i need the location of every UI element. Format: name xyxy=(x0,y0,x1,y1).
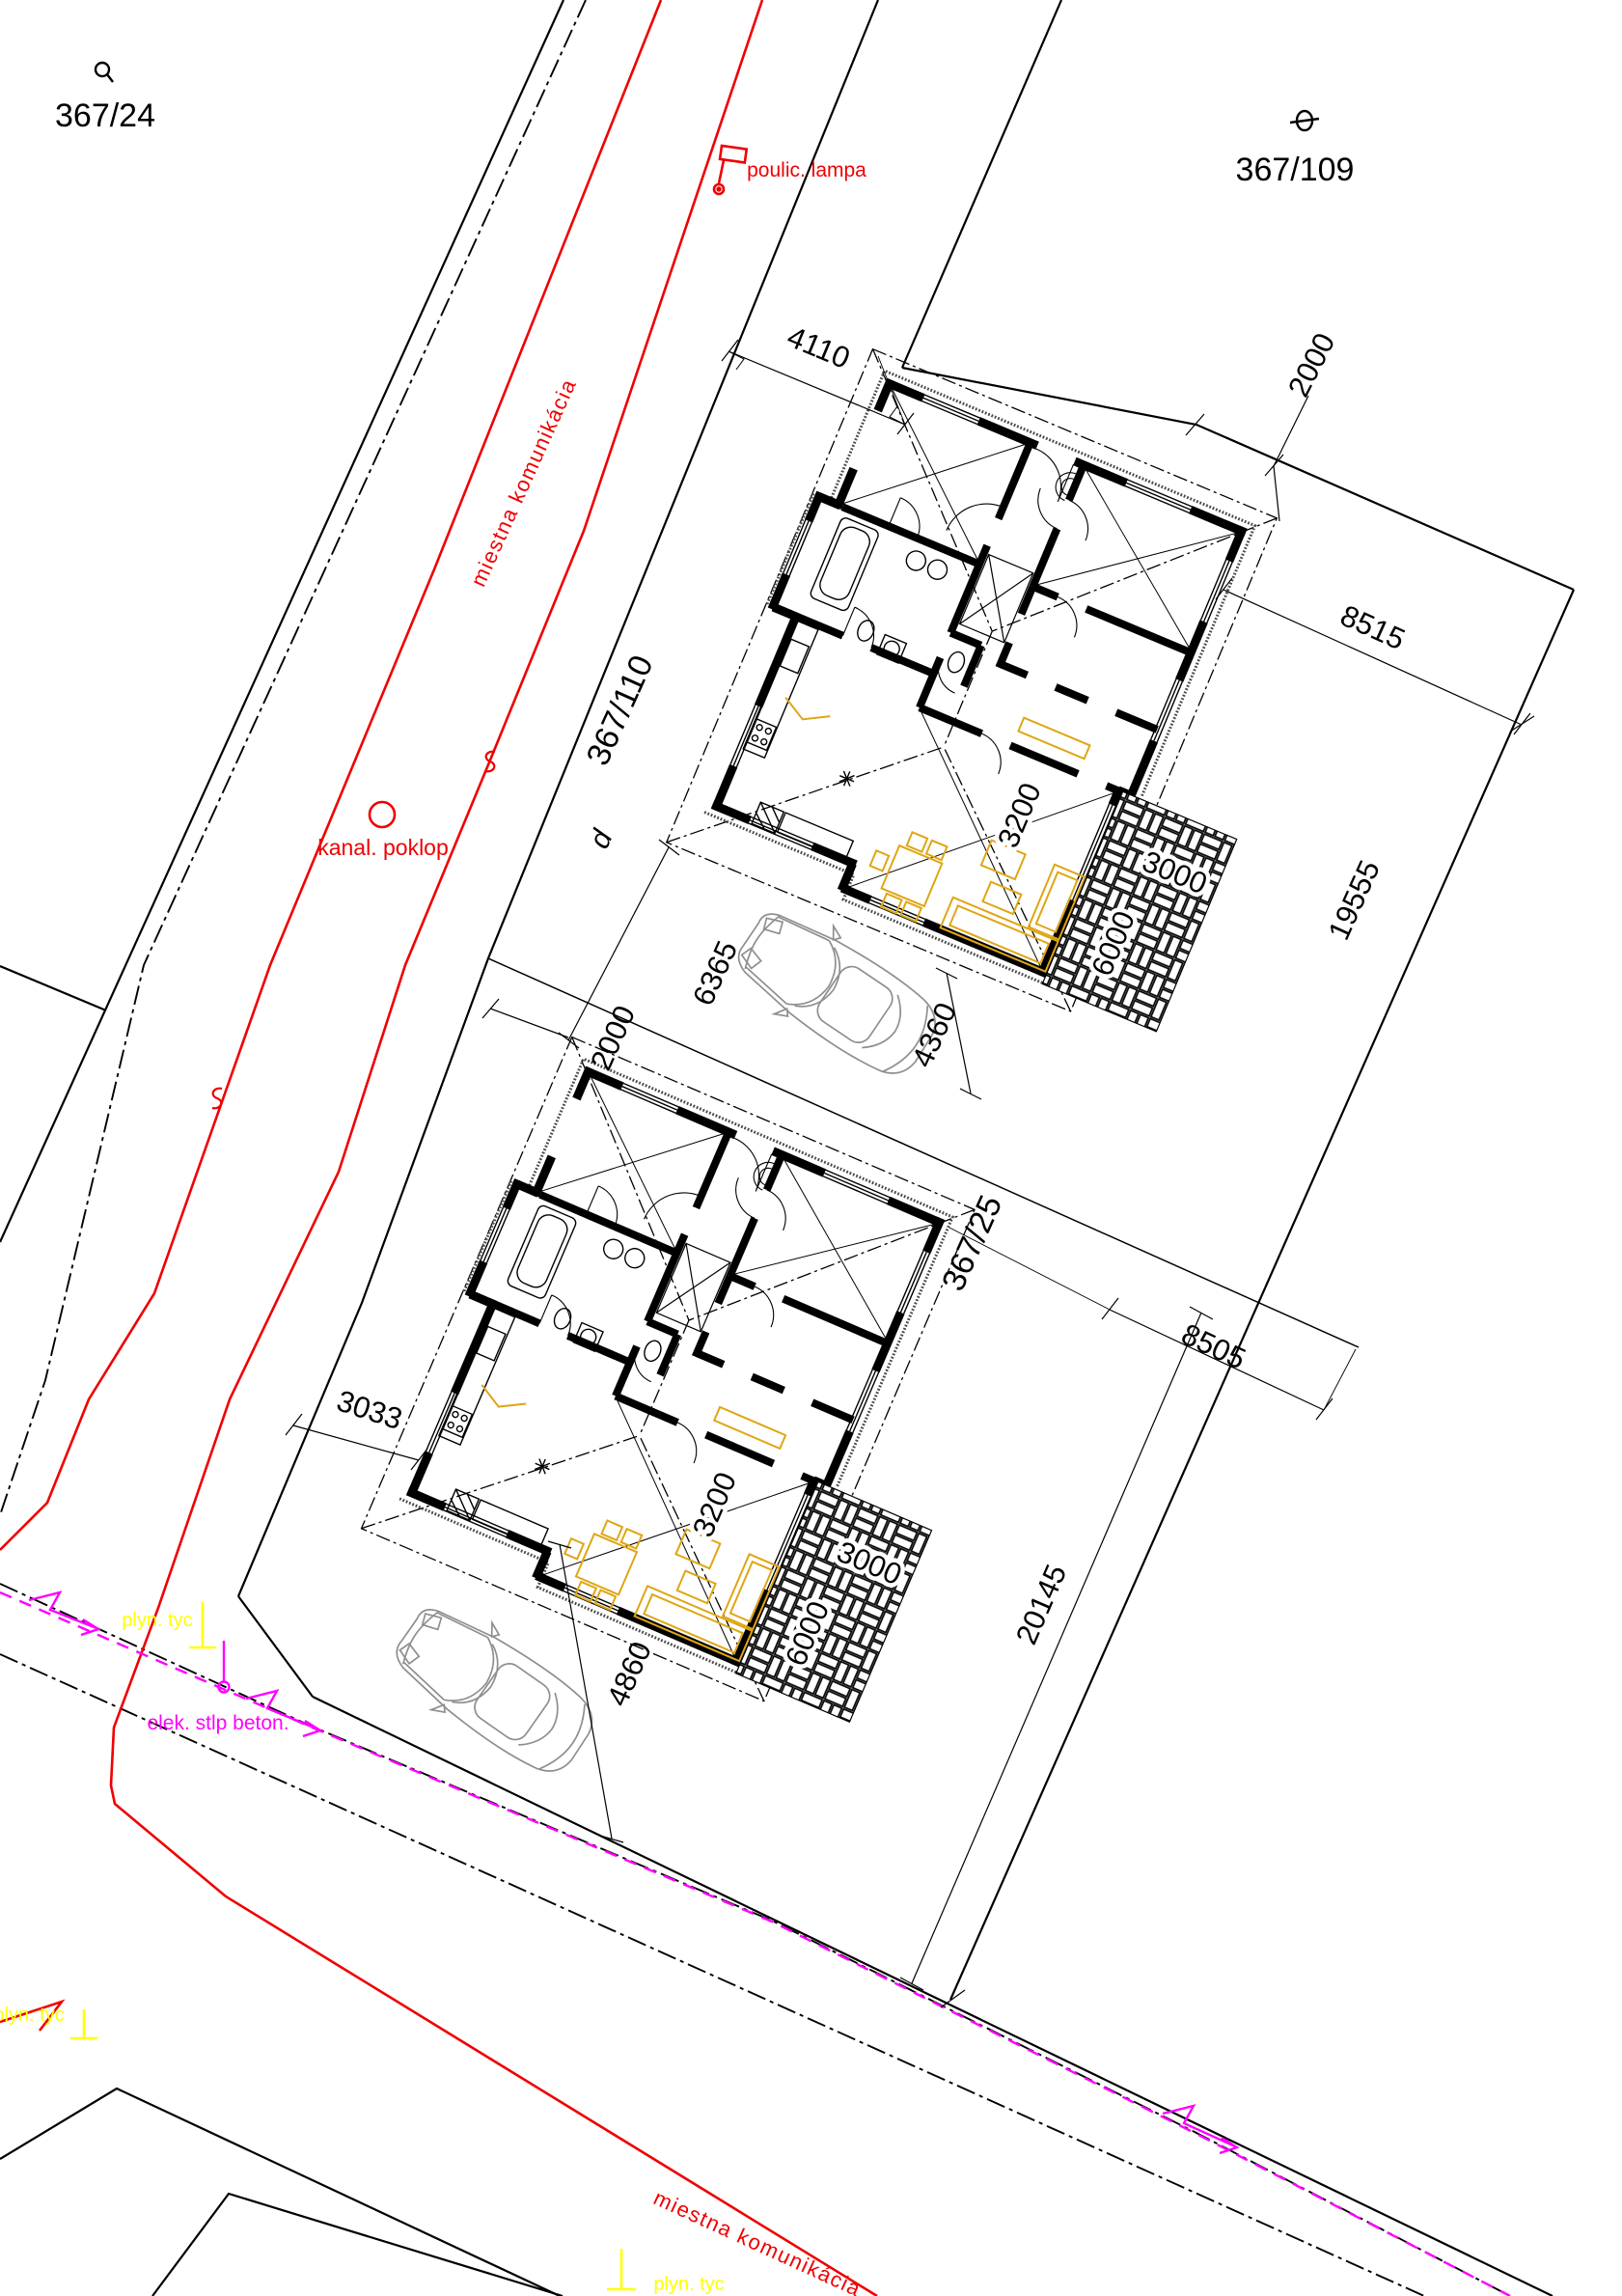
svg-text:elek. stlp beton.: elek. stlp beton. xyxy=(147,1712,289,1734)
svg-text:kanal. poklop: kanal. poklop xyxy=(317,835,449,860)
svg-text:367/24: 367/24 xyxy=(55,97,155,134)
svg-text:plyn. tyc: plyn. tyc xyxy=(0,2005,65,2026)
svg-text:plyn. tyc: plyn. tyc xyxy=(653,2274,724,2295)
svg-text:367/109: 367/109 xyxy=(1236,152,1355,188)
svg-text:poulic. lampa: poulic. lampa xyxy=(747,159,866,181)
svg-text:plyn. tyc: plyn. tyc xyxy=(122,1610,192,1631)
